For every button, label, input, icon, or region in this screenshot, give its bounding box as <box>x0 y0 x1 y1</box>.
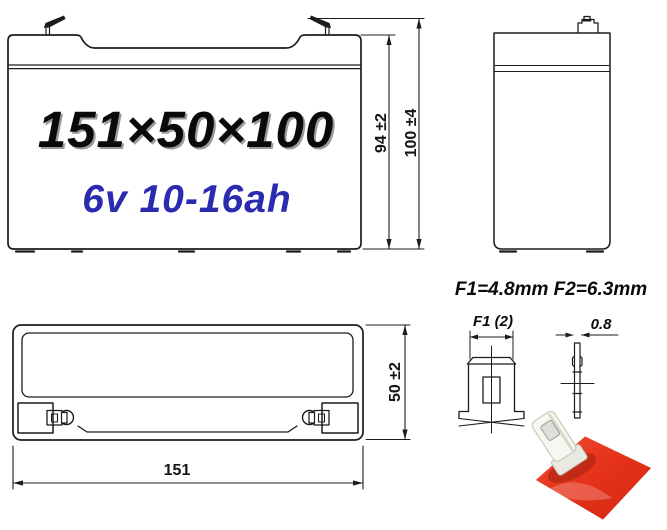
terminal-thickness-label: 0.8 <box>571 316 631 333</box>
battery-dimension-diagram: 151×50×100 6v 10-16ah 94 ±2 100 ±4 50 ±2… <box>0 0 667 530</box>
terminal-spec-title: F1=4.8mm F2=6.3mm <box>438 279 664 301</box>
top-left-terminal-icon <box>47 411 74 426</box>
top-view-drawing <box>13 325 363 440</box>
terminal-side-detail-drawing <box>556 333 618 419</box>
dim-total-height-label: 100 ±4 <box>403 73 421 193</box>
drawing-canvas <box>0 0 667 530</box>
battery-spec-label: 6v 10-16ah <box>62 178 312 222</box>
battery-size-label: 151×50×100 <box>30 100 342 159</box>
side-terminal-icon <box>578 17 598 34</box>
terminal-front-label: F1 (2) <box>453 313 533 330</box>
front-left-terminal-icon <box>44 16 66 36</box>
terminal-front-detail-drawing <box>459 331 524 433</box>
dim-inner-height-label: 94 ±2 <box>373 73 391 193</box>
terminal-photo <box>527 407 651 519</box>
dim-width-label: 151 <box>137 462 217 480</box>
dim-depth-label: 50 ±2 <box>387 322 405 442</box>
side-view-drawing <box>494 17 610 252</box>
top-right-terminal-icon <box>303 411 330 426</box>
